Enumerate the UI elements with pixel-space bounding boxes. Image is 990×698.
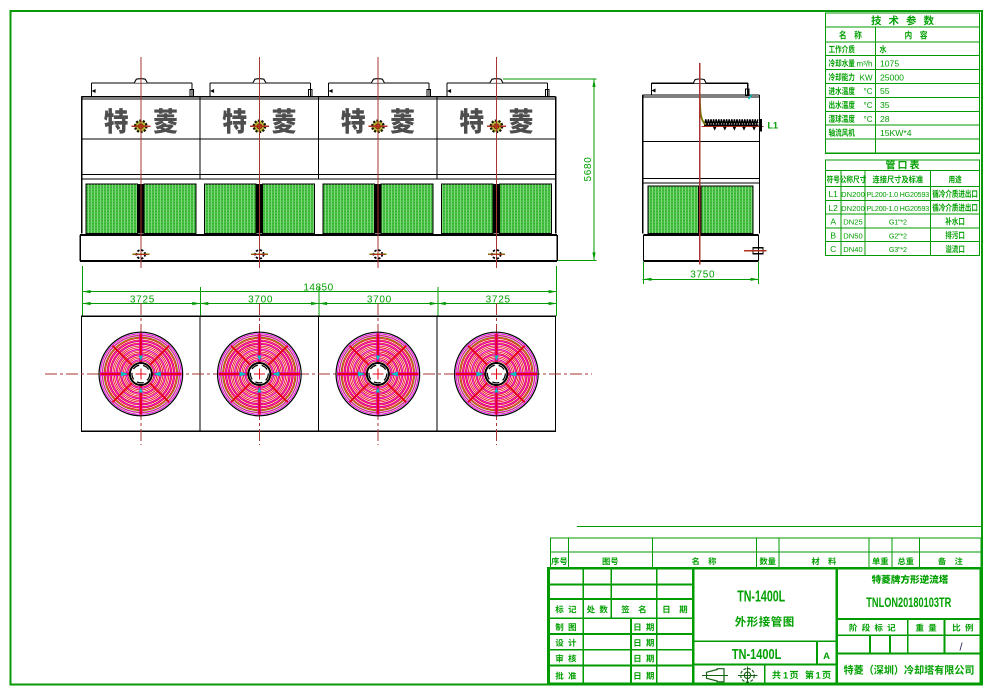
svg-text:A: A: [823, 651, 830, 662]
svg-text:C: C: [830, 244, 836, 254]
svg-text:3700: 3700: [248, 294, 273, 305]
svg-text:L1: L1: [768, 121, 779, 131]
svg-text:°C: °C: [864, 101, 873, 110]
svg-text:1: 1: [783, 670, 788, 680]
svg-text:G1"*2: G1"*2: [889, 218, 907, 227]
svg-text:B: B: [830, 230, 836, 240]
svg-text:3750: 3750: [690, 270, 715, 281]
svg-text:TN-1400L: TN-1400L: [737, 589, 785, 606]
svg-text:A: A: [830, 217, 836, 227]
svg-text:L2: L2: [828, 203, 838, 213]
svg-text:DN40: DN40: [843, 245, 862, 254]
svg-text:DN25: DN25: [843, 218, 862, 227]
svg-text:L1: L1: [828, 189, 838, 199]
svg-text:TN-1400L: TN-1400L: [732, 646, 782, 663]
svg-text:G2"*2: G2"*2: [889, 231, 907, 240]
svg-text:°C: °C: [864, 115, 873, 124]
svg-text:KW: KW: [860, 73, 873, 82]
svg-text:25000: 25000: [880, 72, 904, 82]
svg-text:3700: 3700: [367, 294, 392, 305]
svg-text:DN200: DN200: [841, 204, 865, 213]
svg-text:DN200: DN200: [841, 190, 865, 199]
svg-text:PL200-1.0 HG20593: PL200-1.0 HG20593: [867, 190, 930, 199]
svg-text:DN50: DN50: [843, 231, 862, 240]
svg-text:55: 55: [880, 86, 890, 96]
svg-text:3725: 3725: [486, 294, 511, 305]
svg-text:1: 1: [815, 670, 820, 680]
svg-text:28: 28: [880, 114, 890, 124]
svg-text:3725: 3725: [130, 294, 155, 305]
svg-text:m³/h: m³/h: [857, 59, 873, 68]
svg-text:14850: 14850: [303, 283, 333, 294]
svg-text:15KW*4: 15KW*4: [880, 128, 912, 138]
svg-text:5680: 5680: [583, 156, 594, 181]
svg-text:1075: 1075: [880, 58, 899, 68]
svg-text:TNLON20180103TR: TNLON20180103TR: [866, 594, 951, 610]
svg-text:°C: °C: [864, 87, 873, 96]
svg-text:35: 35: [880, 100, 890, 110]
svg-text:G3"*2: G3"*2: [889, 245, 907, 254]
svg-text:PL200-1.0 HG20593: PL200-1.0 HG20593: [867, 204, 930, 213]
